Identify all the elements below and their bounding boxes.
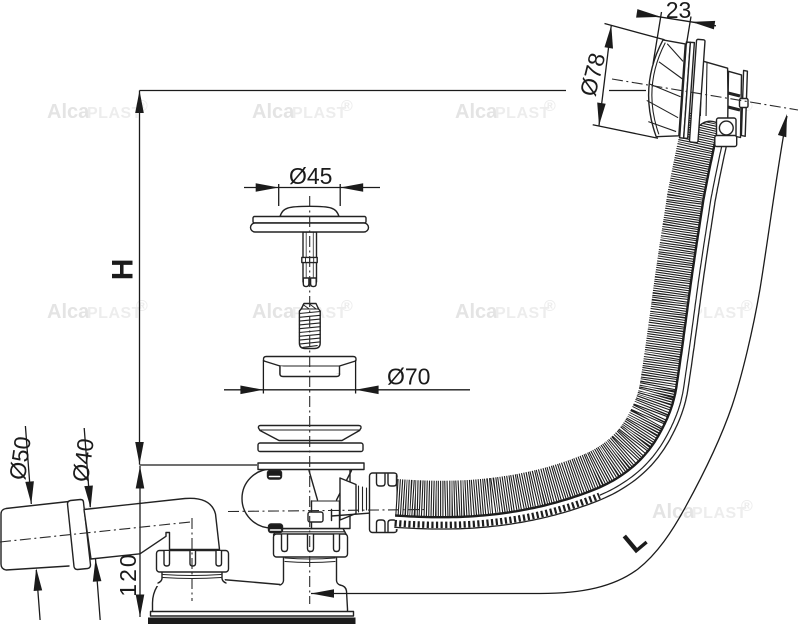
svg-text:Ø45: Ø45 [289,163,332,189]
svg-text:H: H [107,259,140,281]
svg-text:23: 23 [666,0,692,23]
svg-text:120: 120 [115,552,141,596]
svg-text:Ø70: Ø70 [387,364,430,390]
svg-text:Ø40: Ø40 [67,437,99,484]
svg-text:Ø50: Ø50 [4,435,36,482]
svg-text:Ø78: Ø78 [575,50,611,98]
svg-text:L: L [618,523,653,560]
